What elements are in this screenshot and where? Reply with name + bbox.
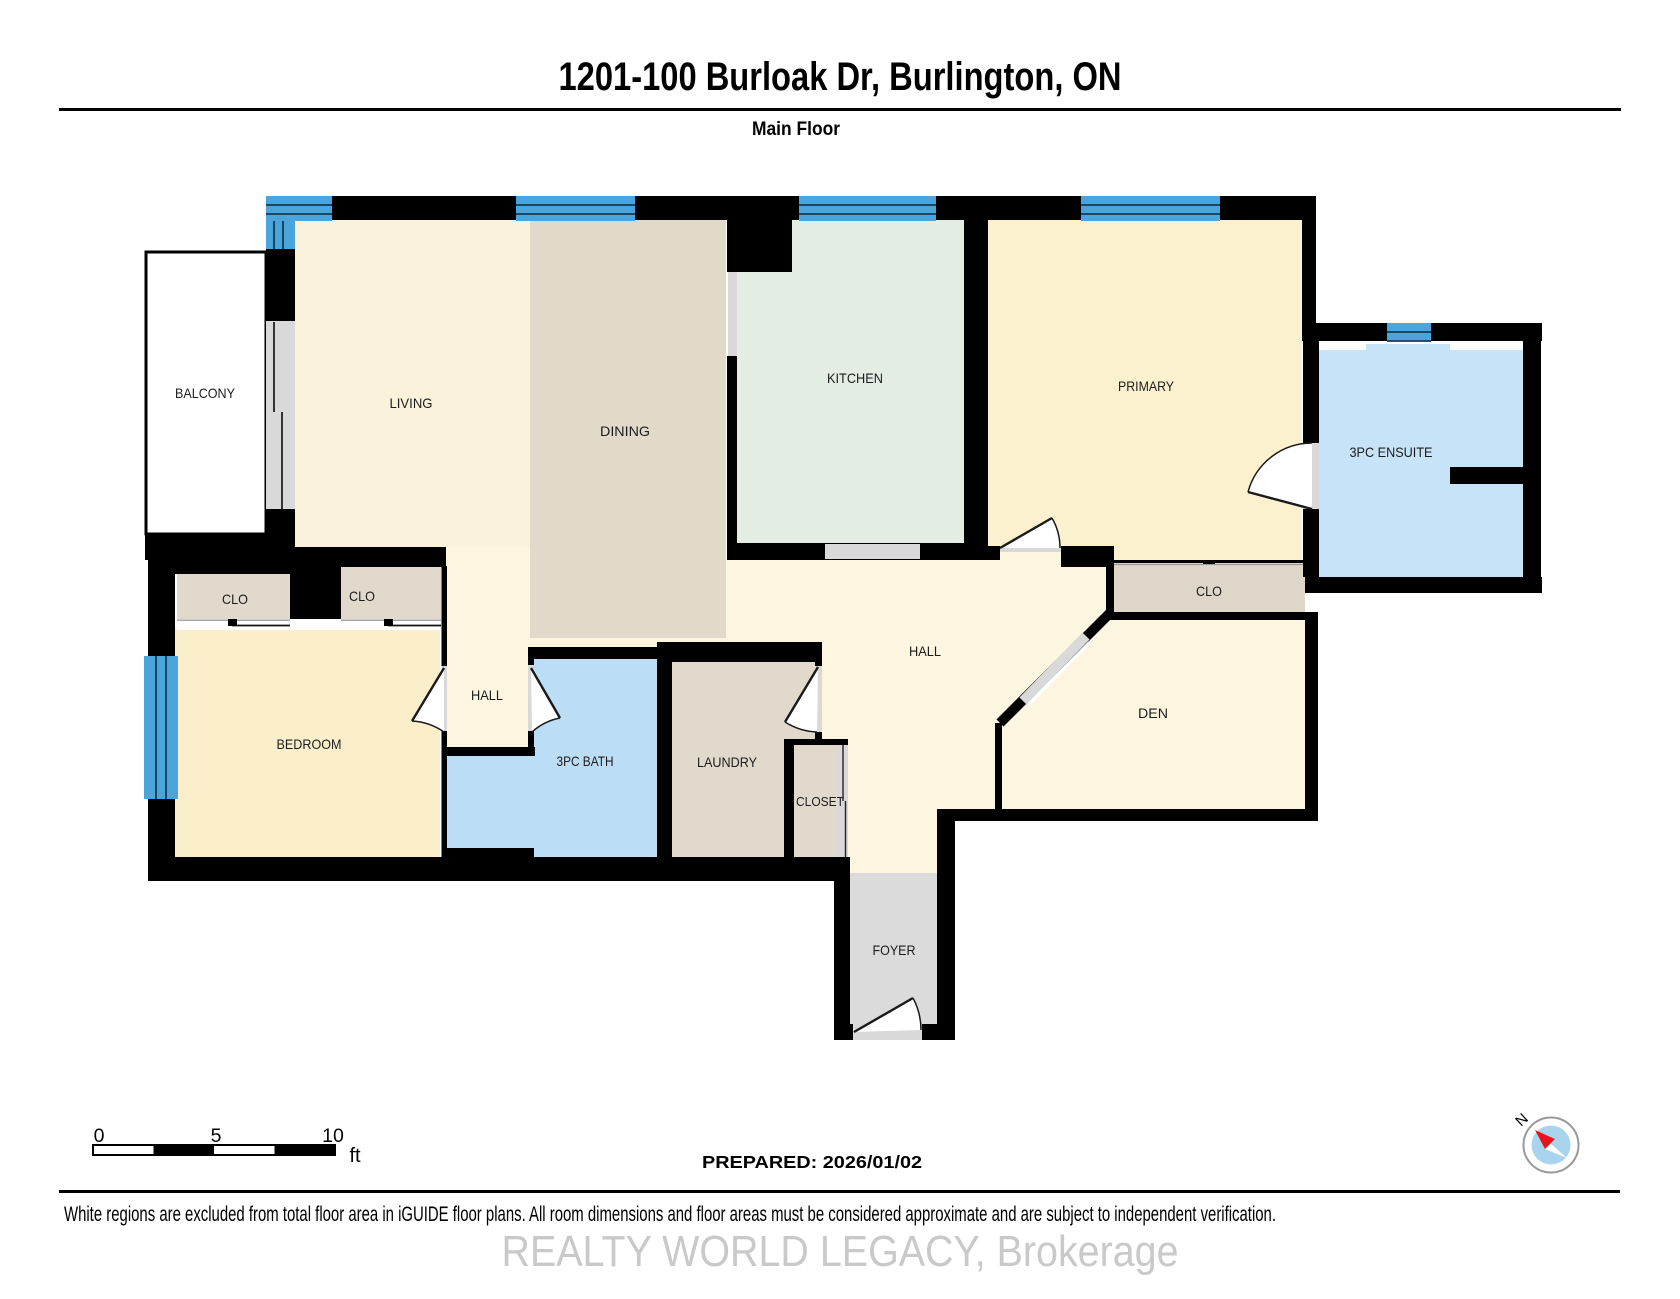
svg-text:HALL: HALL (909, 643, 941, 659)
svg-text:LIVING: LIVING (390, 395, 433, 411)
svg-text:CLOSET: CLOSET (796, 795, 844, 809)
svg-text:CLO: CLO (222, 591, 248, 607)
svg-text:Main Floor: Main Floor (752, 119, 841, 140)
svg-text:White regions are excluded fro: White regions are excluded from total fl… (64, 1203, 1276, 1226)
svg-text:3PC ENSUITE: 3PC ENSUITE (1350, 444, 1433, 460)
svg-text:3PC BATH: 3PC BATH (557, 753, 614, 769)
svg-text:DEN: DEN (1138, 705, 1168, 721)
svg-text:KITCHEN: KITCHEN (827, 370, 883, 386)
svg-text:LAUNDRY: LAUNDRY (697, 754, 758, 770)
svg-text:10: 10 (322, 1125, 344, 1147)
svg-text:REALTY WORLD LEGACY, Brokerage: REALTY WORLD LEGACY, Brokerage (502, 1227, 1179, 1276)
svg-text:FOYER: FOYER (873, 942, 916, 958)
svg-text:1201-100 Burloak Dr, Burlingto: 1201-100 Burloak Dr, Burlington, ON (559, 55, 1122, 99)
svg-text:CLO: CLO (1196, 583, 1222, 599)
svg-text:HALL: HALL (471, 687, 503, 703)
svg-text:ft: ft (349, 1145, 361, 1167)
svg-text:5: 5 (211, 1125, 222, 1147)
svg-text:DINING: DINING (600, 423, 650, 439)
svg-text:PRIMARY: PRIMARY (1118, 378, 1175, 394)
svg-text:PREPARED: 2026/01/02: PREPARED: 2026/01/02 (702, 1152, 922, 1172)
svg-text:0: 0 (94, 1125, 105, 1147)
svg-text:BALCONY: BALCONY (175, 385, 236, 401)
svg-text:BEDROOM: BEDROOM (277, 736, 342, 752)
svg-text:CLO: CLO (349, 588, 375, 604)
